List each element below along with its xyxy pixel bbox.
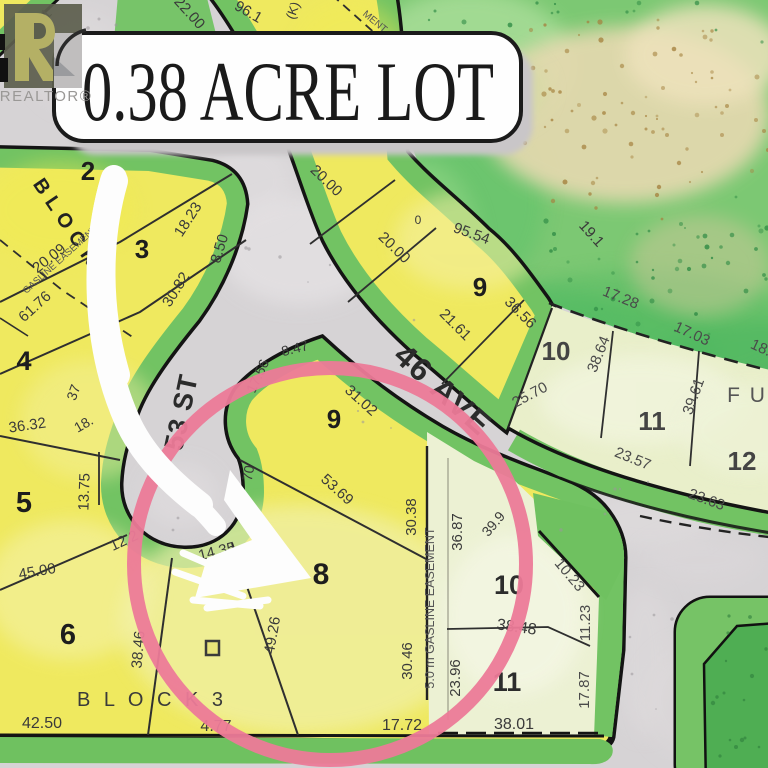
svg-text:REALTOR®: REALTOR®	[0, 88, 92, 105]
svg-text:38.01: 38.01	[494, 716, 534, 733]
svg-text:11: 11	[638, 406, 666, 436]
svg-text:5.0 m GASLINE EASEMENT: 5.0 m GASLINE EASEMENT	[423, 527, 437, 689]
svg-text:70: 70	[239, 464, 257, 482]
svg-text:17.72: 17.72	[382, 717, 422, 734]
svg-text:30.38: 30.38	[403, 498, 420, 536]
svg-text:8: 8	[313, 558, 330, 591]
svg-text:4: 4	[16, 346, 31, 376]
svg-text:5: 5	[16, 487, 32, 519]
svg-text:17.87: 17.87	[576, 671, 593, 709]
svg-text:10: 10	[542, 336, 571, 366]
svg-text:42.50: 42.50	[22, 715, 62, 732]
svg-text:2: 2	[81, 156, 95, 186]
svg-text:12: 12	[728, 446, 757, 476]
svg-text:36.87: 36.87	[449, 513, 466, 551]
svg-text:9: 9	[473, 272, 487, 302]
svg-text:0.38 ACRE LOT: 0.38 ACRE LOT	[82, 45, 494, 139]
svg-text:3: 3	[135, 234, 149, 264]
svg-text:F U: F U	[727, 384, 767, 407]
svg-text:11.23: 11.23	[577, 605, 594, 641]
svg-text:23.96: 23.96	[447, 659, 464, 697]
svg-text:0: 0	[415, 213, 422, 227]
svg-text:6: 6	[60, 619, 76, 651]
svg-text:9: 9	[327, 404, 341, 434]
svg-text:30.46: 30.46	[399, 642, 416, 680]
svg-text:13.75: 13.75	[75, 473, 93, 511]
